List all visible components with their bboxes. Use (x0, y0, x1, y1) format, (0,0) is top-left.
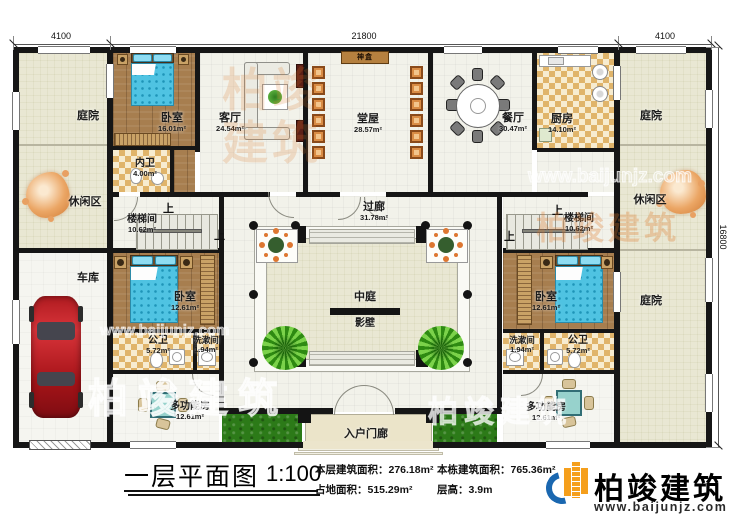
nightstand (540, 256, 553, 269)
room-name: 楼梯间 (127, 214, 157, 225)
wall (140, 192, 270, 197)
window (444, 46, 482, 54)
room-label-bedroom-tl: 卧室16.01m² (142, 112, 202, 133)
hall-chair (410, 98, 423, 111)
window (705, 90, 713, 128)
room-area: 5.72m² (548, 347, 608, 356)
room-label-multi-right: 多功能房12.61m² (506, 402, 586, 422)
hall-chair (312, 114, 325, 127)
bed-fold (131, 267, 177, 280)
room-label-living: 客厅24.54m² (200, 112, 260, 133)
hall-chair (410, 114, 423, 127)
stat-floor-height: 层高：3.9m (437, 482, 492, 497)
nightstand (601, 256, 613, 269)
wall (614, 47, 620, 448)
logo-icon (564, 468, 571, 496)
room-label-stair-left: 楼梯间10.62m² (112, 214, 172, 234)
stat-value: 765.36m² (511, 464, 556, 476)
stat-label: 层高： (437, 484, 469, 496)
bed-pillow (580, 256, 601, 265)
hall-chair (410, 66, 423, 79)
room-area: 12.61m² (516, 304, 576, 313)
room-name: 卧室 (174, 291, 196, 303)
room-name: 洗漱间 (509, 335, 535, 345)
palm-plant (418, 326, 464, 370)
room-name: 庭院 (77, 110, 99, 122)
room-label-kitchen: 厨房14.10m² (532, 113, 592, 134)
column-dot (463, 290, 472, 299)
window (130, 441, 176, 449)
grass-right (433, 414, 497, 442)
wall (113, 329, 219, 333)
plan-title-text: 一层平面图 (124, 463, 259, 491)
wardrobe (114, 133, 171, 146)
dimension-top-center: 21800 (334, 31, 394, 41)
wall (395, 408, 497, 414)
plan-scale-text: 1:100 (266, 461, 321, 486)
kitchen-side-floor (537, 150, 614, 192)
room-area: 12.61m² (506, 414, 586, 423)
room-label-inner-bath: 内卫4.00m² (115, 158, 175, 178)
stat-label: 本层建筑面积： (315, 464, 389, 476)
wall (532, 53, 537, 150)
column-dot (463, 358, 472, 367)
room-label-hall: 堂屋28.57m² (338, 113, 398, 134)
dimension-right: 16800 (718, 214, 728, 260)
room-label-multi-left: 多功能房12.61m² (150, 401, 230, 421)
grass-left (222, 414, 302, 442)
stat-value: 3.9m (469, 484, 493, 496)
stat-land-area: 占地面积：515.29m² (315, 482, 412, 497)
title-underline (128, 494, 320, 496)
stat-building-area: 本栋建筑面积：765.36m² (437, 462, 555, 477)
stat-value: 515.29m² (368, 484, 413, 496)
room-area: 4.00m² (115, 170, 175, 179)
car (31, 296, 81, 418)
room-name: 车库 (77, 272, 99, 284)
rock-dot (698, 180, 705, 187)
wall (428, 53, 433, 192)
screen-wall-bar (330, 308, 400, 315)
column-dot (249, 358, 258, 367)
room-area: 28.57m² (338, 126, 398, 135)
stair-up-label: 上 (163, 200, 174, 216)
room-name: 卧室 (161, 112, 183, 124)
stat-label: 占地面积： (315, 484, 368, 496)
stair-up-label: 上 (504, 228, 515, 244)
room-area: 12.61m² (150, 413, 230, 422)
hall-chair (312, 82, 325, 95)
room-name: 楼梯间 (564, 213, 594, 224)
wall (296, 192, 340, 197)
up-text: 上 (214, 230, 225, 242)
stair-up-label: 上 (214, 227, 225, 243)
hall-chair (410, 82, 423, 95)
window (613, 272, 621, 312)
room-name: 洗漱间 (193, 335, 219, 345)
wall (537, 148, 614, 152)
room-label-corridor: 过廊31.78m² (344, 201, 404, 222)
flower-plant (438, 237, 454, 253)
plan-title: 一层平面图 (124, 457, 259, 493)
stat-label: 本栋建筑面积： (437, 464, 511, 476)
porch-post (426, 408, 439, 423)
rock-dot (62, 170, 69, 177)
room-label-garage: 车库 (58, 272, 118, 285)
porch-step (294, 452, 443, 455)
wardrobe (517, 255, 532, 325)
bed-fold (132, 64, 173, 75)
stove-burner (592, 86, 608, 102)
room-label-screen-wall: 影壁 (335, 318, 395, 330)
bed-pillow (133, 54, 152, 62)
dimension-ext (706, 447, 720, 448)
room-area: 12.61m² (155, 304, 215, 313)
window (38, 46, 90, 54)
room-name: 庭院 (640, 295, 662, 307)
wall (503, 370, 614, 374)
room-area: 10.62m² (549, 225, 609, 234)
logo-url-text: www.baijunjz.com (594, 500, 727, 514)
dimension-value: 4100 (655, 31, 675, 41)
hall-chair (312, 66, 325, 79)
room-label-atrium: 中庭 (335, 291, 395, 304)
wall (13, 248, 113, 253)
room-label-leisure-left: 休闲区 (50, 196, 120, 209)
logo-url: www.baijunjz.com (594, 500, 727, 514)
courtyard-divider (620, 144, 706, 146)
dimension-top-left: 4100 (36, 31, 86, 41)
room-label-pubbath-right: 公卫5.72m² (548, 335, 608, 355)
chair (138, 398, 148, 412)
window (106, 64, 114, 98)
room-name: 厨房 (551, 113, 573, 125)
wall (219, 192, 224, 414)
stove-burner (592, 64, 608, 80)
table-plant (268, 90, 282, 104)
room-name: 庭院 (640, 110, 662, 122)
window (12, 300, 20, 344)
room-name: 卧室 (535, 291, 557, 303)
up-text: 上 (163, 203, 174, 215)
window (12, 92, 20, 130)
wall (500, 192, 588, 197)
room-label-courtyard-tl: 庭院 (58, 110, 118, 123)
atrium-step-bottom (309, 351, 415, 366)
rock-dot (48, 216, 54, 222)
window (705, 258, 713, 302)
up-text: 上 (552, 205, 563, 217)
wall (222, 408, 333, 414)
room-name: 内卫 (135, 158, 155, 169)
car-wheel (78, 392, 83, 408)
up-text: 上 (504, 231, 515, 243)
window (705, 374, 713, 412)
room-label-leisure-right: 休闲区 (615, 194, 685, 207)
tv-cabinet (296, 64, 304, 88)
hall-chair (410, 130, 423, 143)
room-name: 影壁 (355, 318, 375, 329)
room-area: 16.01m² (142, 125, 202, 134)
room-name: 客厅 (219, 112, 241, 124)
wardrobe (200, 255, 215, 325)
rock-dot (22, 198, 29, 205)
room-label-courtyard-br: 庭院 (621, 295, 681, 308)
dimension-line-top (13, 44, 712, 45)
kitchen-sink (548, 57, 564, 65)
room-label-courtyard-tr: 庭院 (621, 110, 681, 123)
courtyard-tr-floor (620, 53, 706, 145)
wall (497, 192, 502, 414)
room-area: 24.54m² (200, 125, 260, 134)
nightstand (180, 256, 193, 269)
kitchen-counter (539, 55, 591, 67)
stat-value: 276.18m² (389, 464, 434, 476)
nightstand (114, 256, 127, 269)
porch-post (298, 408, 311, 423)
room-name: 餐厅 (502, 112, 524, 124)
courtyard-divider (620, 249, 706, 251)
bed-pillow (557, 256, 578, 265)
garage-door (29, 440, 91, 450)
floor-plan-page: 神盒 (0, 0, 750, 531)
room-label-bedroom-left: 卧室12.61m² (155, 291, 215, 312)
hall-chair (312, 98, 325, 111)
room-name: 多功能房 (170, 401, 210, 412)
dimension-value: 4100 (51, 31, 71, 41)
rock-decoration (660, 170, 706, 214)
bed-fold (556, 267, 602, 280)
shrine-label: 神盒 (357, 54, 373, 61)
window (558, 46, 598, 54)
courtyard-divider (19, 144, 107, 146)
column-dot (249, 290, 258, 299)
logo-icon (572, 462, 580, 498)
rock-decoration (26, 172, 70, 218)
room-name: 堂屋 (357, 113, 379, 125)
dimension-ext (706, 47, 720, 48)
courtyard-tl-floor (19, 53, 107, 145)
window (613, 66, 621, 100)
plan-scale: 1:100 (266, 461, 321, 487)
nightstand (117, 54, 128, 65)
car-wheel (78, 306, 83, 322)
wall (195, 53, 200, 152)
window (636, 46, 686, 54)
title-underline (124, 490, 318, 492)
room-name: 公卫 (148, 335, 168, 346)
stat-floor-area: 本层建筑面积：276.18m² (315, 462, 433, 477)
room-name: 休闲区 (69, 196, 102, 208)
chair (562, 379, 576, 389)
shrine-table: 神盒 (341, 51, 389, 64)
bed-pillow (132, 256, 153, 265)
flower-plant (268, 237, 284, 253)
passage-floor (174, 150, 195, 192)
logo-icon (581, 468, 588, 494)
hall-chair (410, 146, 423, 159)
courtyard-br-floor (620, 250, 706, 442)
room-name: 中庭 (354, 291, 376, 303)
car-wheel (29, 392, 34, 408)
wall (113, 146, 197, 150)
rock-dot (690, 212, 696, 218)
room-area: 1.94m² (176, 346, 236, 355)
room-name: 公卫 (568, 335, 588, 346)
room-area: 14.10m² (532, 126, 592, 135)
chair (156, 381, 170, 391)
wall (386, 192, 497, 197)
hall-chair (312, 146, 325, 159)
dining-chair (472, 68, 483, 81)
dimension-top-right: 4100 (640, 31, 690, 41)
dimension-value: 16800 (718, 224, 728, 249)
nightstand (178, 54, 189, 65)
room-label-bedroom-right: 卧室12.61m² (516, 291, 576, 312)
bed-pillow (155, 256, 176, 265)
tv-cabinet (296, 120, 304, 142)
wall (503, 329, 614, 333)
room-name: 休闲区 (634, 194, 667, 206)
dining-chair (472, 130, 483, 143)
room-label-wash-right: 洗漱间1.94m² (492, 336, 552, 354)
car-wheel (29, 306, 34, 322)
bed-pillow (153, 54, 172, 62)
atrium-step-top (309, 229, 415, 244)
room-label-wash-left: 洗漱间1.94m² (176, 336, 236, 354)
room-label-porch: 入户门廊 (326, 428, 406, 441)
window (546, 441, 590, 449)
palm-plant (262, 326, 308, 370)
room-name: 入户门廊 (344, 428, 388, 440)
room-area: 1.94m² (492, 346, 552, 355)
hall-chair (312, 130, 325, 143)
room-area: 10.62m² (112, 226, 172, 235)
room-name: 过廊 (363, 201, 385, 213)
room-name: 多功能房 (526, 402, 566, 413)
stair-up-label: 上 (552, 202, 563, 218)
room-area: 31.78m² (344, 214, 404, 223)
dimension-value: 21800 (351, 31, 376, 41)
porch-opening (303, 441, 433, 449)
